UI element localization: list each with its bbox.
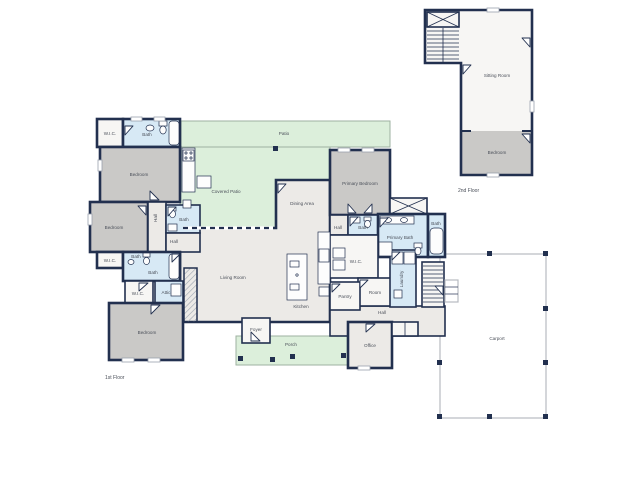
- label-wic: W.I.C.: [104, 131, 117, 136]
- label-wic: W.I.C.: [104, 258, 117, 263]
- carport-area: Carport: [437, 251, 548, 419]
- post: [487, 414, 492, 419]
- label-bath: Bath: [179, 217, 189, 222]
- label-kitchen: Kitchen: [293, 304, 309, 309]
- label-primary-bedroom: Primary Bedroom: [342, 181, 378, 186]
- window: [154, 117, 165, 121]
- toilet-symbol: [415, 247, 421, 255]
- window: [338, 148, 350, 152]
- label-bedroom: Bedroom: [488, 150, 507, 155]
- label-dining-area: Dining Area: [290, 201, 314, 206]
- sink-symbol: [168, 224, 177, 231]
- label-attic: Attic: [162, 290, 172, 295]
- patio-table: [197, 176, 211, 188]
- window: [358, 366, 370, 370]
- window: [88, 214, 92, 225]
- house-second-floor: Sitting Room Bedroom: [425, 8, 534, 177]
- label-primary-bath: Primary Bath: [387, 235, 414, 240]
- bathtub-symbol: [169, 121, 179, 145]
- label-foyer: Foyer: [250, 327, 262, 332]
- floor-plan: Carport: [0, 0, 640, 480]
- label-bath: Bath: [142, 132, 152, 137]
- shower-symbol: [171, 284, 181, 296]
- laundry-sink: [394, 290, 402, 298]
- side-stoop: [445, 280, 458, 302]
- label-hall: Hall: [170, 239, 178, 244]
- post: [437, 414, 442, 419]
- post: [238, 356, 243, 361]
- label-pantry: Pantry: [338, 294, 352, 299]
- label-bath: Bath: [148, 270, 158, 275]
- window: [148, 358, 160, 362]
- post: [543, 306, 548, 311]
- label-first-floor: 1st Floor: [105, 375, 125, 381]
- label-sitting-room: Sitting Room: [484, 73, 510, 78]
- outdoor-sink: [183, 200, 191, 208]
- range-symbol: [319, 249, 329, 262]
- label-porch: Porch: [285, 342, 297, 347]
- bathtub-symbol: [430, 228, 443, 254]
- stairs-first-floor: [422, 262, 444, 307]
- label-covered-patio: Covered Patio: [211, 189, 241, 194]
- post: [543, 414, 548, 419]
- post: [543, 251, 548, 256]
- label-carport: Carport: [489, 336, 505, 341]
- label-bedroom: Bedroom: [138, 330, 157, 335]
- label-room: Room: [369, 290, 381, 295]
- window: [487, 8, 499, 12]
- sink-symbol: [146, 125, 154, 131]
- window: [530, 101, 534, 112]
- shower-symbol: [379, 242, 392, 256]
- fireplace-chase: [184, 268, 197, 322]
- post: [487, 251, 492, 256]
- label-second-floor: 2nd Floor: [458, 188, 479, 194]
- toilet-symbol: [144, 257, 150, 264]
- post: [270, 357, 275, 362]
- grill-symbol: [183, 150, 194, 161]
- post: [273, 146, 278, 151]
- label-wic: W.I.C.: [132, 291, 145, 296]
- dresser-symbol: [333, 260, 345, 270]
- window: [98, 160, 102, 171]
- floor-plan-page: Carport: [0, 0, 640, 480]
- room-hall-a: [148, 202, 166, 252]
- label-wic: W.I.C.: [350, 259, 363, 264]
- faucet: [296, 274, 298, 276]
- label-patio: Patio: [279, 131, 290, 136]
- toilet-symbol: [159, 121, 167, 126]
- label-laundry: Laundry: [399, 270, 404, 287]
- window: [131, 117, 142, 121]
- label-bath: Bath: [131, 254, 141, 259]
- label-hall: Hall: [334, 225, 342, 230]
- label-living-room: Living Room: [220, 275, 246, 280]
- post: [437, 360, 442, 365]
- dresser-symbol: [333, 248, 345, 258]
- dryer-symbol: [404, 252, 415, 264]
- label-bedroom: Bedroom: [130, 172, 149, 177]
- window: [362, 148, 374, 152]
- toilet-symbol: [160, 126, 166, 134]
- fridge-symbol: [319, 287, 329, 296]
- sink-symbol: [401, 218, 408, 223]
- label-bath: Bath: [431, 221, 441, 226]
- toilet-symbol: [143, 253, 150, 257]
- window: [487, 173, 499, 177]
- island-cooktop: [290, 284, 299, 290]
- island-sink: [290, 261, 299, 267]
- sink-symbol: [128, 260, 134, 265]
- label-hall: Hall: [378, 310, 386, 315]
- label-hall: Hall: [153, 214, 158, 222]
- label-bath: Bath: [358, 225, 368, 230]
- post: [290, 354, 295, 359]
- window: [122, 358, 134, 362]
- label-office: Office: [364, 343, 376, 348]
- post: [543, 360, 548, 365]
- post: [341, 353, 346, 358]
- label-bedroom: Bedroom: [105, 225, 124, 230]
